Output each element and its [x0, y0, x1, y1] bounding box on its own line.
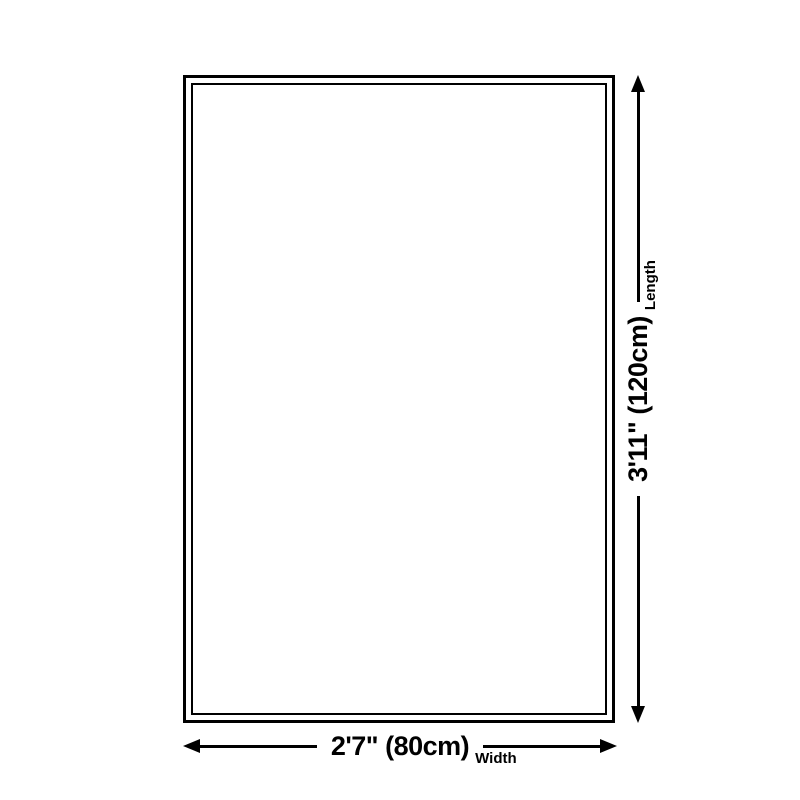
rug-outline — [183, 75, 615, 723]
length-value: 3'11" (120cm) — [625, 302, 652, 496]
width-value: 2'7" (80cm) — [317, 733, 483, 760]
right-arrow-icon — [600, 739, 617, 753]
length-line-segment — [637, 496, 640, 706]
left-arrow-icon — [183, 739, 200, 753]
length-dimension-line: 3'11" (120cm) Length — [623, 75, 653, 723]
width-line-segment — [200, 745, 317, 748]
up-arrow-icon — [631, 75, 645, 92]
width-label: Width — [475, 751, 517, 766]
down-arrow-icon — [631, 706, 645, 723]
width-dimension-line: 2'7" (80cm) Width — [183, 731, 617, 761]
length-label: Length — [643, 260, 658, 310]
width-line-segment: Width — [483, 745, 600, 748]
length-line-segment: Length — [637, 92, 640, 302]
size-diagram: 3'11" (120cm) Length 2'7" (80cm) Width — [0, 0, 800, 800]
rug-inner-outline — [191, 83, 607, 715]
